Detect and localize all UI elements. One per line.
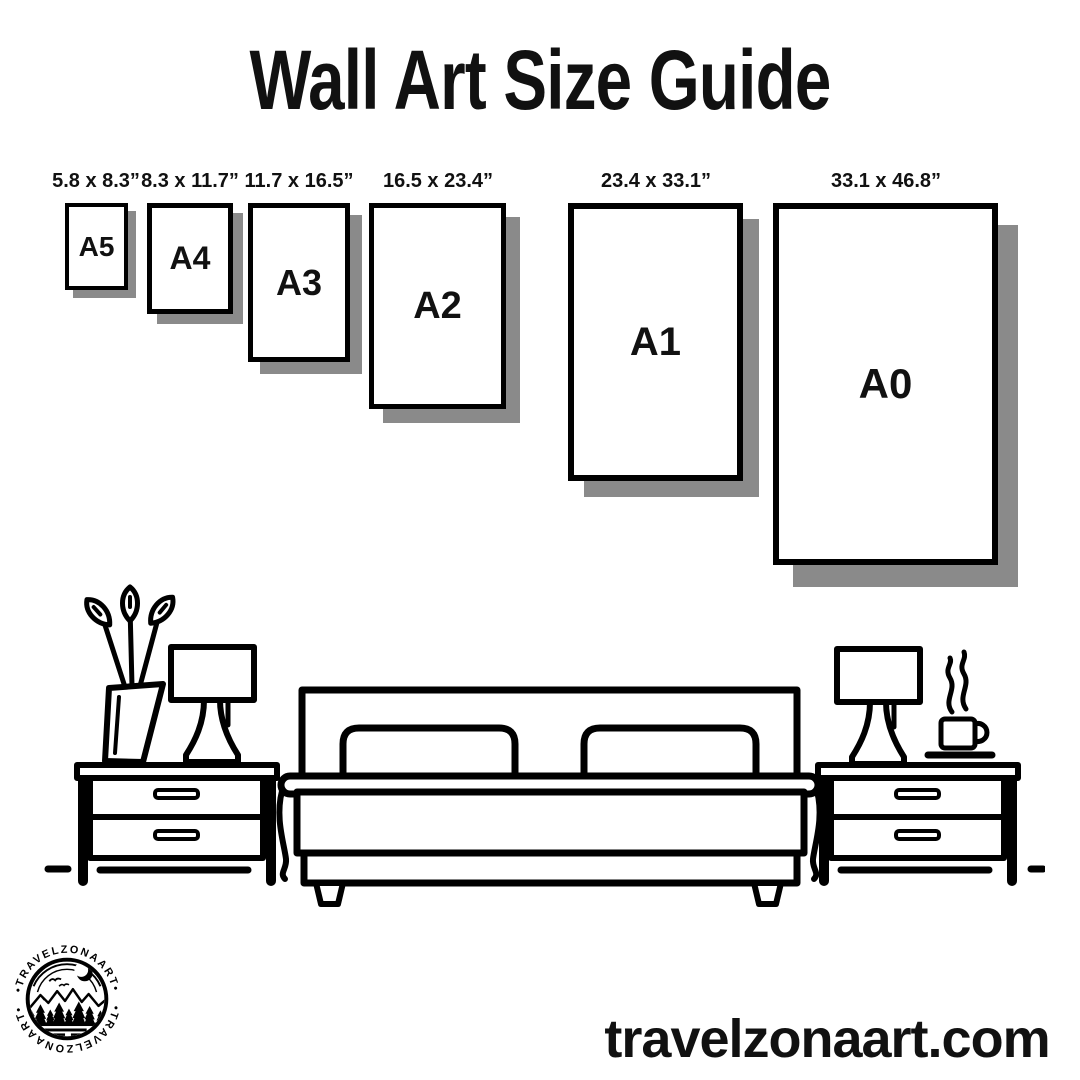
bed-icon xyxy=(279,690,819,904)
nightstand-left-icon xyxy=(77,765,277,881)
bed-leg-icon xyxy=(754,883,781,904)
frame-letter: A1 xyxy=(630,320,681,365)
size-label-a1: 23.4 x 33.1” xyxy=(601,170,711,193)
size-label-a5: 5.8 x 8.3” xyxy=(52,170,140,193)
page-title: Wall Art Size Guide xyxy=(119,38,961,122)
brand-badge-logo: •TRAVELZONAART• •TRAVELZONAART• xyxy=(8,940,126,1058)
coffee-cup-icon xyxy=(928,652,992,755)
size-label-a2: 16.5 x 23.4” xyxy=(383,170,493,193)
size-guide-poster: Wall Art Size Guide 5.8 x 8.3” 8.3 x 11.… xyxy=(0,0,1080,1080)
table-lamp-left-icon xyxy=(171,647,254,762)
size-label-a4: 8.3 x 11.7” xyxy=(141,170,239,193)
frame-a5: A5 xyxy=(65,203,128,290)
bedroom-illustration xyxy=(35,583,1045,918)
bed-leg-icon xyxy=(316,883,343,904)
website-text: travelzonaart.com xyxy=(604,1008,1049,1070)
frame-a0: A0 xyxy=(773,203,998,565)
table-lamp-right-icon xyxy=(837,649,920,764)
frame-a1: A1 xyxy=(568,203,743,481)
frame-letter: A3 xyxy=(276,262,322,304)
size-label-a3: 11.7 x 16.5” xyxy=(245,170,354,193)
frame-letter: A0 xyxy=(859,360,913,408)
frame-a2: A2 xyxy=(369,203,506,409)
nightstand-right-icon xyxy=(818,765,1018,881)
vase-plant-icon xyxy=(81,587,178,762)
steam-icon xyxy=(948,658,952,712)
frame-letter: A2 xyxy=(413,285,462,328)
size-label-a0: 33.1 x 46.8” xyxy=(831,170,941,193)
frame-letter: A4 xyxy=(170,240,211,277)
frame-letter: A5 xyxy=(79,231,115,263)
frame-a4: A4 xyxy=(147,203,233,314)
steam-icon xyxy=(962,652,966,709)
frame-a3: A3 xyxy=(248,203,350,362)
